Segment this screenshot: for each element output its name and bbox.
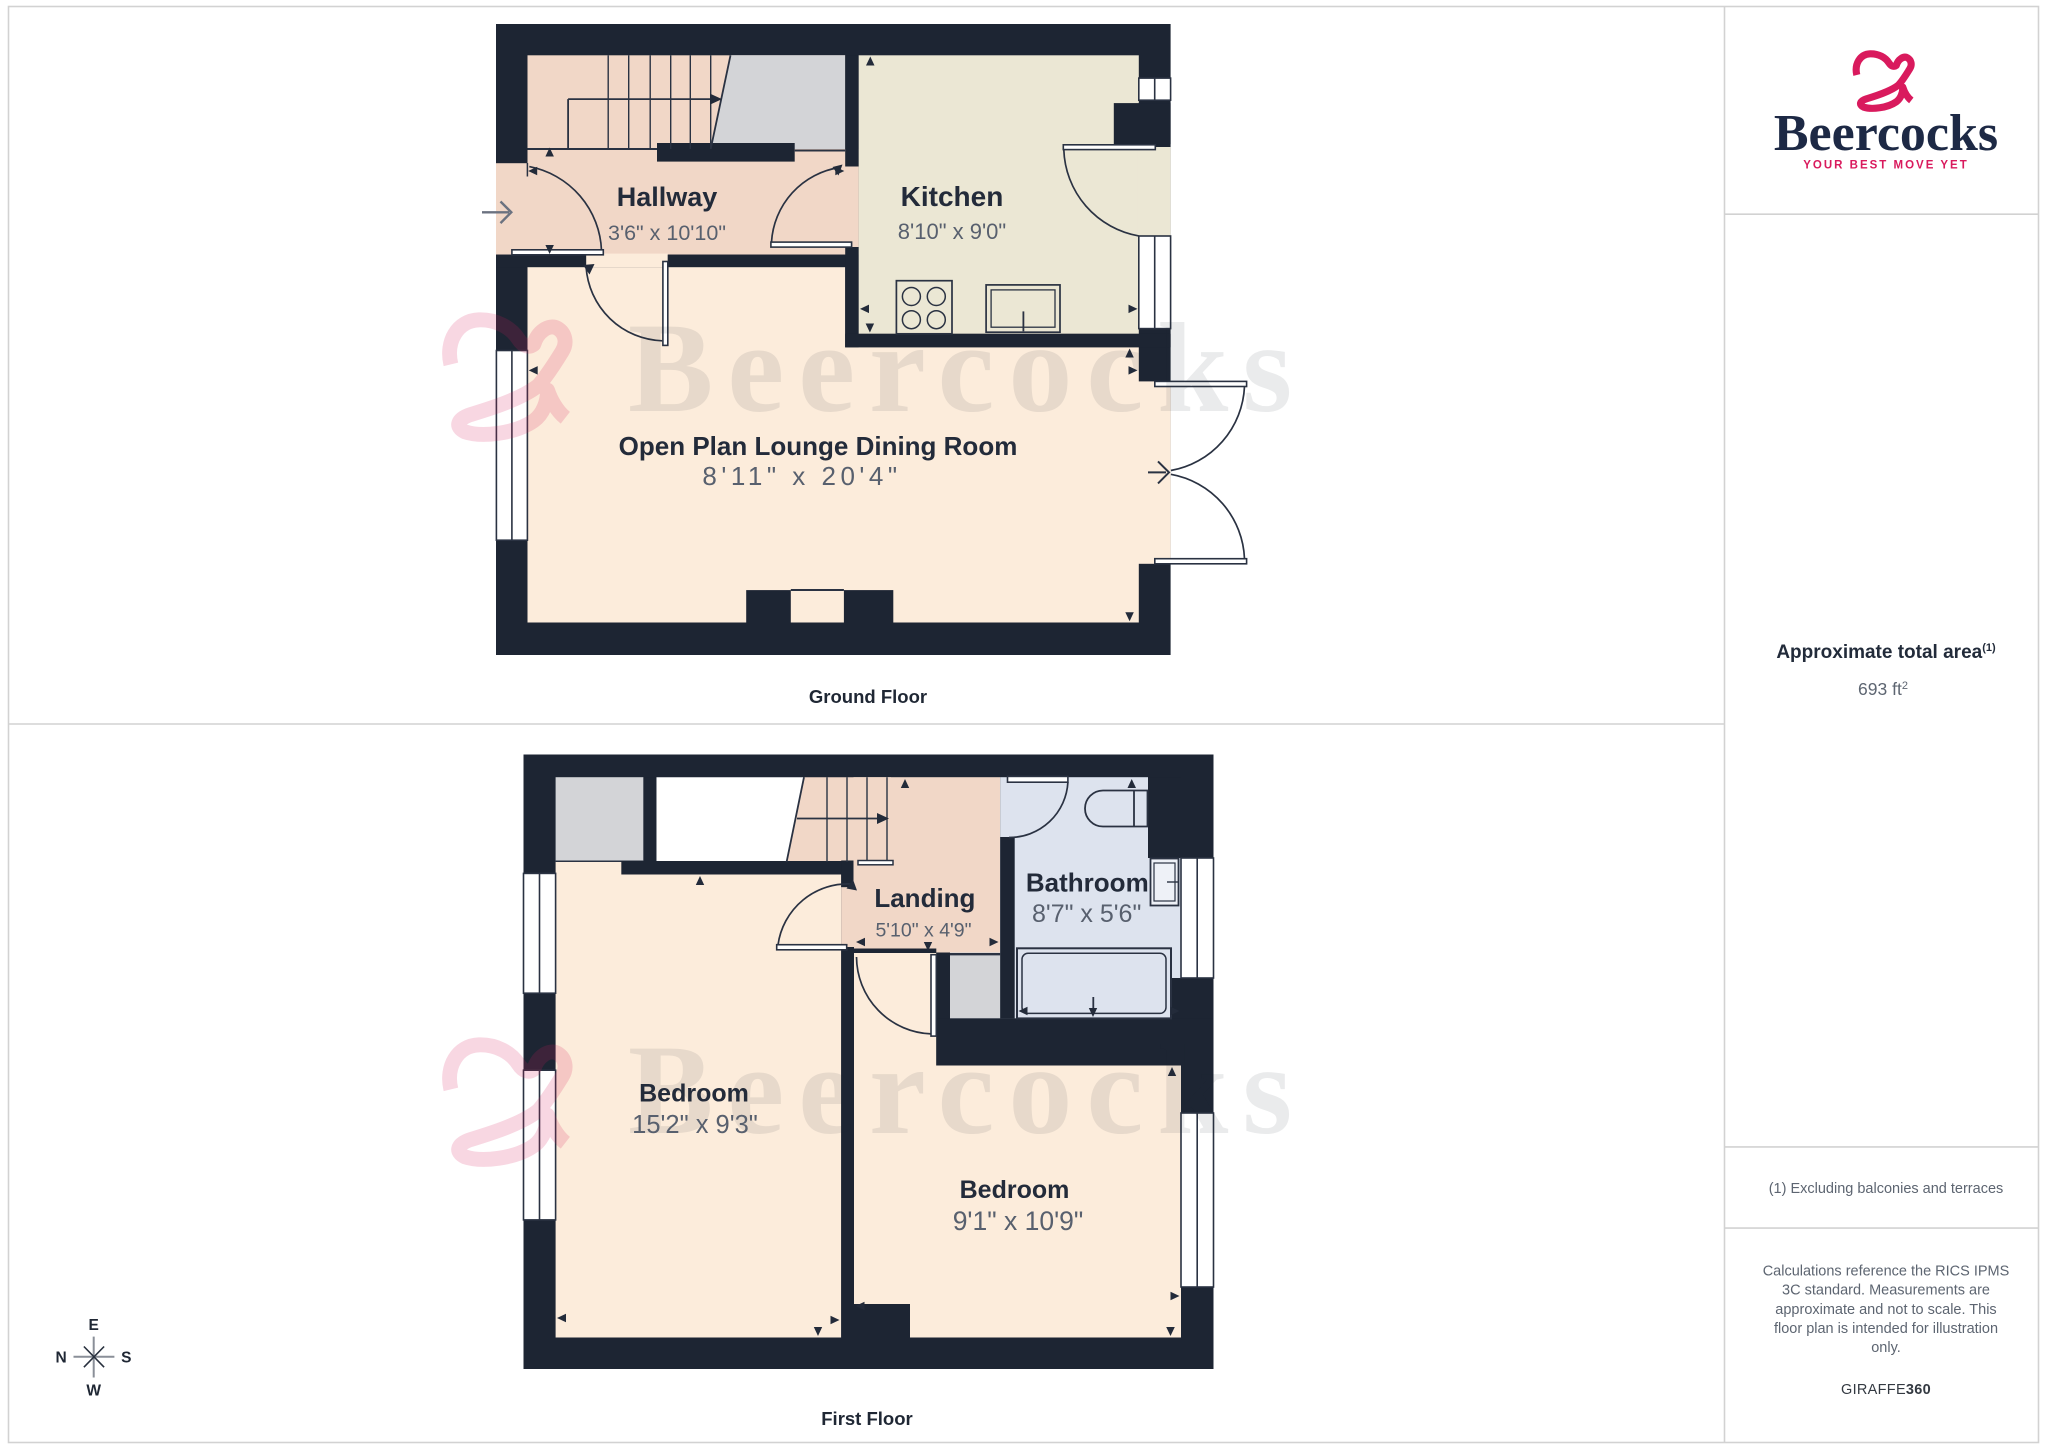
- svg-text:9'1" x 10'9": 9'1" x 10'9": [953, 1206, 1084, 1236]
- svg-text:8'10" x 9'0": 8'10" x 9'0": [898, 219, 1006, 244]
- svg-text:Landing: Landing: [874, 883, 975, 913]
- svg-text:693 ft2: 693 ft2: [1858, 679, 1908, 699]
- svg-text:Bedroom: Bedroom: [960, 1176, 1070, 1204]
- svg-text:E: E: [89, 1317, 99, 1334]
- svg-text:8'11" x 20'4": 8'11" x 20'4": [702, 461, 901, 491]
- svg-text:Open Plan Lounge Dining Room: Open Plan Lounge Dining Room: [619, 431, 1018, 461]
- svg-text:(1) Excluding balconies and te: (1) Excluding balconies and terraces: [1769, 1181, 2004, 1197]
- svg-text:Kitchen: Kitchen: [901, 181, 1004, 212]
- svg-text:S: S: [121, 1350, 131, 1367]
- svg-text:3C standard. Measurements are: 3C standard. Measurements are: [1782, 1283, 1990, 1299]
- svg-text:Approximate total area(1): Approximate total area(1): [1776, 642, 1996, 663]
- svg-text:Beercocks: Beercocks: [1774, 105, 1998, 162]
- svg-text:GIRAFFE360: GIRAFFE360: [1841, 1382, 1931, 1398]
- svg-text:YOUR BEST MOVE YET: YOUR BEST MOVE YET: [1803, 160, 1969, 172]
- svg-text:N: N: [55, 1350, 66, 1367]
- svg-text:3'6" x 10'10": 3'6" x 10'10": [608, 221, 726, 245]
- svg-text:5'10" x 4'9": 5'10" x 4'9": [875, 920, 971, 942]
- svg-text:Hallway: Hallway: [617, 182, 718, 212]
- svg-text:8'7" x 5'6": 8'7" x 5'6": [1032, 900, 1141, 928]
- svg-text:Bathroom: Bathroom: [1026, 868, 1149, 898]
- svg-text:floor plan is intended for ill: floor plan is intended for illustration: [1774, 1321, 1998, 1337]
- svg-text:First Floor: First Floor: [821, 1408, 912, 1429]
- svg-text:Calculations reference the RIC: Calculations reference the RICS IPMS: [1763, 1263, 2010, 1279]
- svg-text:Ground Floor: Ground Floor: [809, 686, 927, 707]
- svg-text:15'2" x 9'3": 15'2" x 9'3": [632, 1111, 758, 1139]
- svg-text:Beercocks: Beercocks: [628, 297, 1306, 439]
- svg-text:W: W: [86, 1383, 101, 1400]
- svg-text:only.: only.: [1871, 1340, 1901, 1356]
- svg-text:approximate and not to scale.: approximate and not to scale. This: [1775, 1302, 1996, 1318]
- svg-text:Bedroom: Bedroom: [639, 1080, 749, 1108]
